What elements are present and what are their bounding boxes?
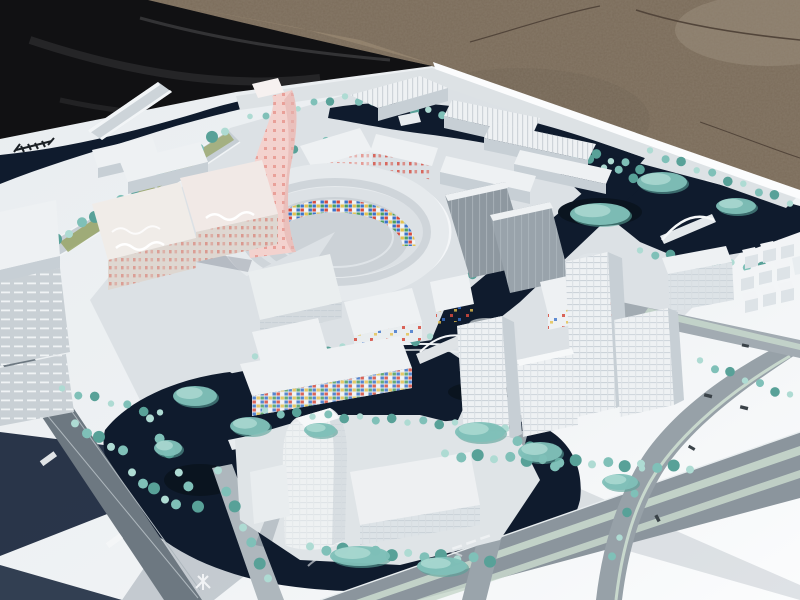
photo-architectural-model: Photograph of a white architectural scal… xyxy=(0,0,800,600)
tree xyxy=(619,460,631,472)
tree xyxy=(608,552,616,560)
tree xyxy=(419,416,427,424)
tree-cluster xyxy=(641,173,671,185)
tree xyxy=(264,574,272,582)
tree xyxy=(635,165,645,175)
tree-cluster xyxy=(306,424,325,432)
tree xyxy=(631,490,639,498)
tree xyxy=(339,414,349,424)
tree xyxy=(74,392,82,400)
tree xyxy=(324,410,332,418)
tree xyxy=(254,558,266,570)
tree xyxy=(668,460,680,472)
tree xyxy=(629,174,639,184)
tree xyxy=(342,93,348,99)
tree xyxy=(570,454,582,466)
tree xyxy=(651,252,659,260)
tree xyxy=(306,542,314,550)
tree-cluster xyxy=(459,423,489,435)
tree-cluster xyxy=(421,558,451,569)
tree xyxy=(740,181,746,187)
tree xyxy=(787,200,793,206)
tree-cluster xyxy=(176,387,202,399)
tree xyxy=(723,177,733,187)
tree xyxy=(292,408,302,418)
tree xyxy=(157,409,163,415)
tree xyxy=(246,537,256,547)
tree-cluster xyxy=(335,547,371,559)
tree xyxy=(139,407,149,417)
tree xyxy=(148,482,160,494)
tree-cluster xyxy=(719,199,743,209)
tree xyxy=(742,377,748,383)
tree xyxy=(128,468,136,476)
tree xyxy=(484,556,496,568)
parking-stripes xyxy=(0,268,70,366)
tree xyxy=(404,549,412,557)
tree xyxy=(637,247,643,253)
tree xyxy=(221,487,231,497)
tree xyxy=(588,460,596,468)
tree xyxy=(622,508,632,518)
tree xyxy=(404,419,410,425)
tree xyxy=(505,452,515,462)
tree xyxy=(107,443,115,451)
tree xyxy=(686,466,694,474)
tree xyxy=(229,500,241,512)
tree xyxy=(123,400,131,408)
tree xyxy=(608,158,614,164)
tree xyxy=(694,167,700,173)
tree xyxy=(321,546,331,556)
tree xyxy=(90,392,100,402)
tree xyxy=(82,428,92,438)
tree xyxy=(65,230,73,238)
tree xyxy=(192,501,204,513)
tree xyxy=(118,445,128,455)
tree xyxy=(214,466,222,474)
tree xyxy=(456,453,466,463)
tree xyxy=(387,414,397,424)
tree xyxy=(711,365,719,373)
tree xyxy=(441,449,449,457)
tree xyxy=(770,387,780,397)
tree xyxy=(138,479,148,489)
tree xyxy=(615,166,623,174)
tree xyxy=(676,157,686,167)
tree xyxy=(434,420,444,430)
tree xyxy=(452,419,458,425)
tree xyxy=(469,552,479,562)
tree xyxy=(622,158,630,166)
tree xyxy=(647,147,653,153)
tree-cluster xyxy=(575,204,611,217)
tree xyxy=(247,114,253,120)
tree xyxy=(171,499,181,509)
tree xyxy=(263,113,270,120)
tree xyxy=(616,534,622,540)
tree xyxy=(161,496,169,504)
tree xyxy=(183,481,193,491)
tree-cluster xyxy=(521,443,547,455)
tree xyxy=(603,457,613,467)
tree xyxy=(239,524,247,532)
tree xyxy=(490,455,498,463)
tree xyxy=(252,353,258,359)
tree xyxy=(372,417,380,425)
tree xyxy=(309,413,315,419)
tree xyxy=(175,469,183,477)
tree xyxy=(662,155,670,163)
tree xyxy=(513,436,523,446)
tree xyxy=(93,431,105,443)
tree xyxy=(71,419,79,427)
tree xyxy=(326,97,334,105)
tree xyxy=(756,379,764,387)
tree xyxy=(206,131,218,143)
tree xyxy=(472,449,484,461)
tree xyxy=(697,357,703,363)
tree xyxy=(725,367,735,377)
slab-windows xyxy=(614,308,674,417)
tree xyxy=(770,190,780,200)
tree xyxy=(708,169,716,177)
tree xyxy=(221,128,229,136)
tree-cluster xyxy=(233,418,257,429)
tree-cluster xyxy=(156,441,173,451)
tree xyxy=(146,414,154,422)
island-annex xyxy=(250,464,290,524)
tree xyxy=(59,385,65,391)
scene-canvas: Photograph of a white architectural scal… xyxy=(0,0,800,600)
tree-cluster xyxy=(605,475,627,485)
tree xyxy=(425,107,431,113)
tree xyxy=(262,407,268,413)
tree xyxy=(755,189,763,197)
tree xyxy=(427,333,433,339)
tree xyxy=(108,400,114,406)
tree xyxy=(652,463,662,473)
tree xyxy=(357,413,363,419)
tree xyxy=(639,465,645,471)
tree xyxy=(77,217,87,227)
tree xyxy=(787,391,793,397)
tree xyxy=(311,99,318,106)
tree xyxy=(277,411,285,419)
